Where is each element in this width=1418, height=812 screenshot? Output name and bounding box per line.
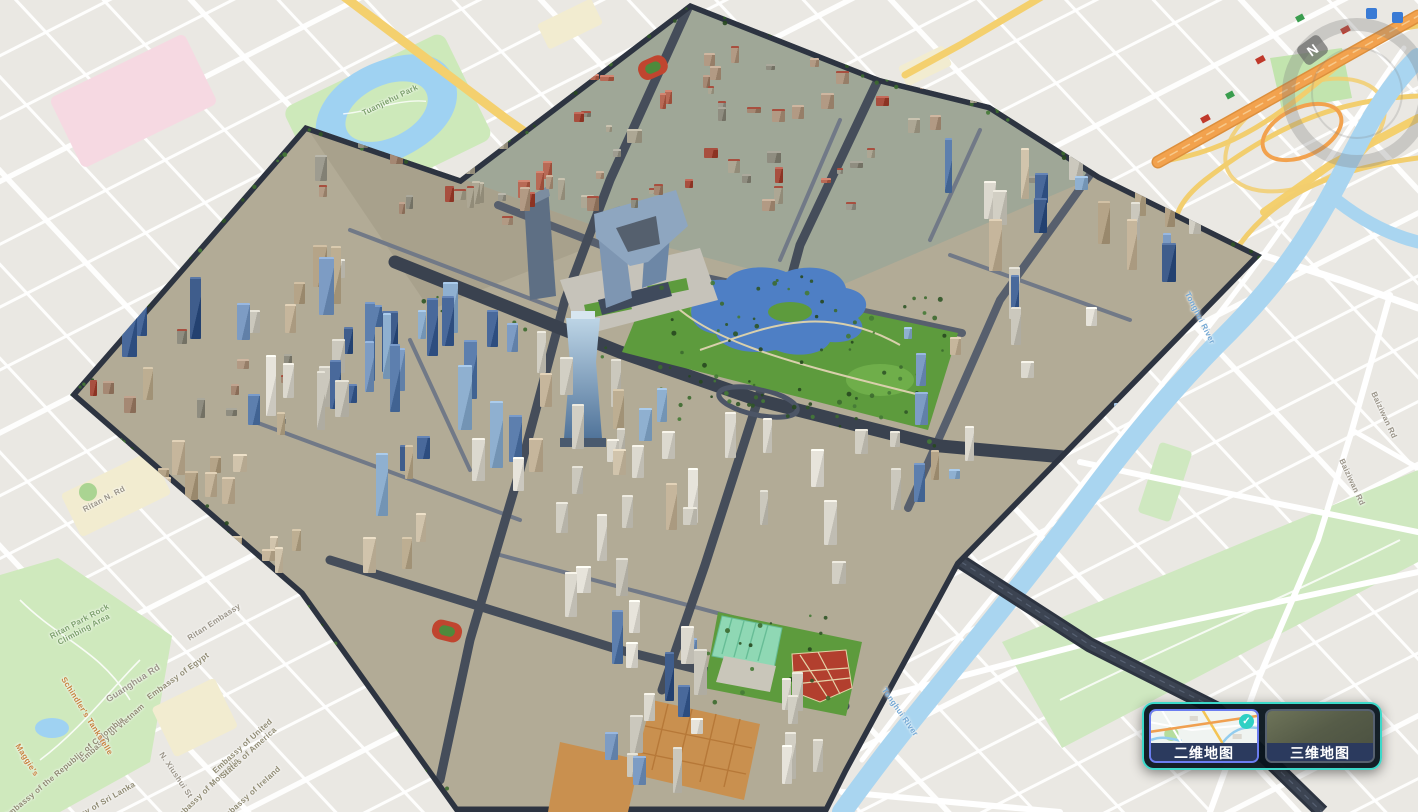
- building: [930, 115, 942, 131]
- building: [665, 90, 672, 104]
- building: [1098, 201, 1110, 244]
- building: [767, 151, 781, 163]
- building: [529, 438, 543, 472]
- building: [90, 380, 97, 396]
- building: [731, 46, 739, 63]
- building: [442, 296, 453, 347]
- building: [867, 148, 876, 158]
- building: [1011, 307, 1020, 345]
- building: [775, 167, 783, 183]
- building: [454, 189, 465, 200]
- building: [277, 412, 285, 435]
- building: [908, 118, 921, 133]
- building: [190, 277, 201, 339]
- building: [691, 718, 704, 735]
- building: [630, 715, 642, 753]
- building: [210, 456, 221, 473]
- building: [657, 388, 667, 422]
- building: [728, 159, 739, 173]
- building: [574, 112, 584, 122]
- building: [319, 257, 334, 316]
- building: [205, 472, 217, 497]
- check-icon: ✓: [1239, 714, 1254, 729]
- map-mode-switcher: ✓ 二维地图 三维地图: [1142, 702, 1382, 770]
- building: [576, 566, 591, 593]
- building: [565, 572, 577, 617]
- compass-inner-ring: [1311, 47, 1403, 139]
- building: [605, 732, 618, 761]
- building: [294, 282, 305, 304]
- building: [103, 381, 115, 394]
- building: [266, 355, 276, 416]
- building: [418, 310, 426, 339]
- building: [666, 483, 677, 530]
- building: [472, 438, 486, 481]
- building: [1086, 307, 1097, 326]
- building: [1021, 361, 1034, 378]
- building: [222, 477, 235, 504]
- building: [283, 363, 294, 398]
- building: [762, 199, 776, 211]
- building: [949, 469, 960, 479]
- building: [704, 53, 716, 66]
- building: [626, 642, 638, 668]
- building: [631, 198, 638, 208]
- building: [390, 344, 400, 412]
- building: [537, 331, 547, 373]
- building: [572, 404, 584, 449]
- building: [673, 747, 682, 793]
- building: [520, 187, 530, 211]
- building: [683, 507, 697, 525]
- building: [629, 600, 640, 633]
- building: [292, 529, 301, 552]
- building: [824, 500, 838, 545]
- building: [821, 93, 834, 108]
- building: [344, 327, 353, 354]
- building: [989, 219, 1002, 272]
- building: [855, 429, 869, 455]
- building: [237, 303, 250, 340]
- building: [681, 626, 694, 664]
- building: [813, 739, 823, 773]
- map-mode-2d-label: 二维地图: [1151, 743, 1257, 763]
- building: [405, 445, 413, 479]
- building: [916, 353, 927, 385]
- building: [747, 107, 761, 113]
- building: [376, 453, 388, 516]
- building: [613, 449, 626, 475]
- building: [417, 436, 430, 459]
- building: [558, 178, 565, 200]
- building: [704, 148, 719, 158]
- building: [233, 454, 247, 472]
- map-3d-thumbnail: [1267, 711, 1373, 743]
- building: [846, 202, 856, 210]
- building: [560, 357, 573, 395]
- building: [915, 392, 927, 425]
- building: [612, 610, 622, 664]
- building: [1162, 243, 1176, 282]
- building: [536, 171, 544, 190]
- building: [616, 558, 628, 596]
- building: [606, 125, 612, 132]
- building: [914, 463, 925, 502]
- building: [760, 490, 769, 525]
- building: [718, 107, 726, 121]
- building: [644, 693, 655, 722]
- building: [365, 341, 375, 392]
- building: [950, 337, 961, 356]
- building: [821, 178, 831, 183]
- building: [248, 394, 260, 425]
- building: [237, 359, 249, 369]
- building: [587, 196, 599, 211]
- building: [197, 398, 205, 418]
- building: [662, 431, 675, 459]
- building: [124, 396, 136, 413]
- building: [782, 745, 792, 784]
- building: [766, 64, 775, 70]
- building: [774, 186, 783, 204]
- building: [763, 418, 773, 453]
- building: [335, 380, 349, 417]
- building: [427, 298, 438, 356]
- building: [143, 367, 153, 400]
- building: [262, 549, 275, 562]
- building: [487, 310, 498, 347]
- map-mode-3d-button[interactable]: 三维地图: [1265, 709, 1375, 763]
- building: [513, 457, 524, 491]
- building: [596, 171, 604, 179]
- building: [490, 401, 503, 468]
- building: [1127, 219, 1137, 270]
- building: [1034, 198, 1046, 233]
- building: [633, 756, 647, 785]
- building: [231, 384, 240, 395]
- building: [613, 149, 621, 157]
- building: [317, 371, 325, 430]
- building: [540, 373, 553, 407]
- building: [363, 537, 377, 573]
- building: [597, 514, 607, 561]
- building: [725, 412, 737, 458]
- building: [792, 105, 805, 120]
- building: [406, 195, 413, 209]
- building: [639, 408, 652, 441]
- map-mode-2d-button[interactable]: ✓ 二维地图: [1149, 709, 1259, 763]
- building: [811, 449, 824, 487]
- building: [832, 561, 846, 585]
- building: [315, 155, 328, 181]
- building: [502, 216, 513, 226]
- building: [772, 109, 785, 123]
- building: [546, 175, 553, 189]
- building: [627, 129, 642, 143]
- building: [632, 445, 645, 478]
- building: [694, 649, 707, 695]
- building: [572, 466, 583, 494]
- building: [498, 193, 506, 201]
- building: [891, 468, 901, 511]
- building: [708, 86, 715, 94]
- building: [810, 58, 819, 67]
- building: [399, 202, 405, 214]
- building: [890, 431, 900, 446]
- building: [622, 495, 633, 528]
- building: [556, 502, 568, 533]
- building: [226, 408, 237, 416]
- building: [467, 186, 475, 208]
- compass-north-label: N: [1304, 41, 1322, 60]
- building: [600, 75, 614, 81]
- map-2d-thumbnail: ✓: [1151, 711, 1257, 743]
- building: [965, 426, 974, 461]
- building: [509, 415, 522, 462]
- building: [931, 450, 939, 480]
- building: [850, 161, 863, 168]
- building: [685, 179, 693, 187]
- building: [416, 513, 426, 542]
- building: [458, 365, 472, 430]
- building: [660, 93, 667, 109]
- building: [876, 96, 889, 106]
- building: [1021, 148, 1029, 200]
- building: [945, 138, 953, 193]
- building: [402, 537, 412, 568]
- building: [613, 389, 624, 429]
- building: [177, 329, 187, 345]
- building: [319, 185, 328, 197]
- building: [172, 440, 186, 475]
- building: [1075, 176, 1088, 190]
- building: [507, 323, 518, 352]
- map-mode-3d-label: 三维地图: [1267, 743, 1373, 763]
- building: [904, 327, 912, 339]
- building: [654, 184, 663, 195]
- building: [665, 652, 674, 701]
- map-viewport: Tuanjiehu ParkRitan Park Rock Climbing A…: [0, 0, 1418, 812]
- building: [185, 471, 198, 501]
- building: [445, 186, 454, 202]
- building: [836, 71, 849, 84]
- building: [837, 168, 843, 175]
- building: [788, 695, 799, 724]
- building: [678, 685, 690, 716]
- building: [710, 66, 721, 80]
- building: [742, 174, 752, 184]
- building: [285, 304, 295, 333]
- building: [275, 547, 283, 572]
